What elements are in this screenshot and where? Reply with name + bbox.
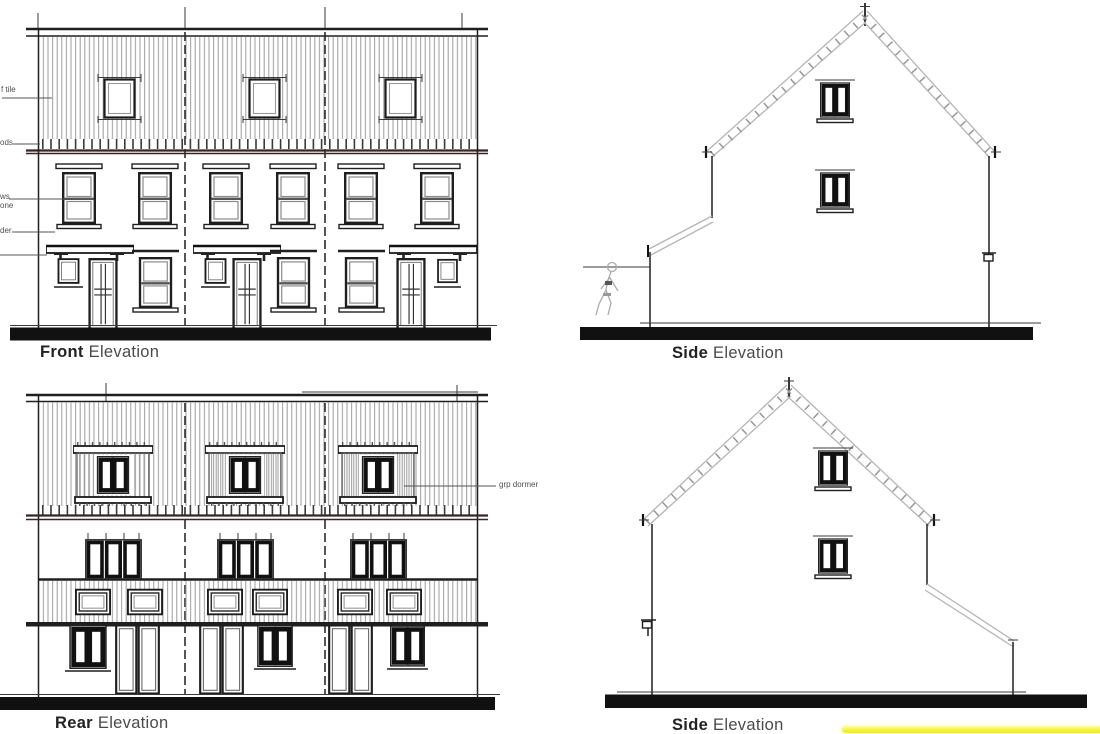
ground-floor-window [132, 251, 179, 312]
side-elevation-top-drawing [580, 3, 1041, 340]
band-window [128, 590, 162, 615]
rear-elevation-label: RearElevation [55, 714, 168, 733]
dormer-window [205, 444, 285, 505]
label-rest: Elevation [713, 716, 784, 734]
label-bold: Side [672, 716, 708, 734]
band-window [338, 590, 372, 615]
dormer-window [338, 444, 418, 505]
first-floor-window [56, 164, 102, 229]
attic-window [98, 74, 141, 123]
rainwater-hopper [641, 620, 656, 636]
band-window [76, 590, 110, 615]
annotation-stone: one [0, 202, 13, 210]
side-elevation-bottom-drawing [605, 377, 1087, 708]
annotation-grp-dormer: grp dormer [499, 481, 538, 489]
attic-window [243, 74, 286, 123]
first-floor-window [132, 164, 178, 229]
triple-window [351, 533, 406, 579]
patio-door [200, 625, 220, 693]
first-floor-window [203, 164, 249, 229]
band-window [387, 590, 421, 615]
highlight-marker [842, 726, 1100, 733]
attic-window [379, 74, 422, 123]
first-floor-window [414, 164, 460, 229]
front-door [90, 259, 117, 329]
label-bold: Side [672, 344, 708, 362]
band-window [253, 590, 287, 615]
triple-window [86, 533, 141, 579]
annotation-boards: ods [0, 139, 13, 147]
rear-ground-window [387, 626, 428, 669]
patio-door [352, 625, 372, 693]
first-floor-window [338, 164, 384, 229]
ground-small-window [201, 259, 230, 287]
label-rest: Elevation [713, 344, 784, 362]
gable-window [815, 80, 855, 123]
elevations-svg [0, 0, 1100, 734]
patio-door [223, 625, 243, 693]
side-window [815, 170, 855, 213]
annotation-roof-tile: f tile [1, 86, 16, 94]
rear-ground-line [0, 697, 495, 710]
annotation-render: der [0, 227, 12, 235]
front-door [398, 259, 425, 329]
side-bottom-ground-line [605, 695, 1087, 709]
rear-elevation-drawing [0, 383, 500, 710]
dormer-window [73, 444, 153, 505]
rainwater-hopper [982, 253, 996, 261]
drawing-sheet: FrontElevation SideElevation RearElevati… [0, 0, 1100, 734]
patio-door [116, 625, 136, 693]
person-figure [596, 263, 618, 316]
label-rest: Elevation [89, 343, 160, 361]
ground-small-window [434, 260, 461, 287]
front-elevation-drawing [10, 7, 497, 341]
label-rest: Elevation [98, 714, 169, 732]
ground-small-window [54, 259, 83, 287]
side-elevation-top-label: SideElevation [672, 344, 784, 363]
gable-window [813, 448, 853, 491]
triple-window [218, 533, 273, 579]
ground-floor-window [338, 251, 385, 312]
front-ground-line [10, 328, 491, 341]
patio-door [139, 625, 159, 693]
first-floor-window [270, 164, 316, 229]
side-top-ground-line [580, 327, 1033, 340]
front-elevation-label: FrontElevation [40, 343, 159, 362]
side-window [813, 536, 853, 579]
band-window [208, 590, 242, 615]
front-door [234, 259, 261, 329]
rear-ground-window [65, 626, 111, 671]
ground-floor-window [270, 251, 317, 312]
label-bold: Rear [55, 714, 93, 732]
side-elevation-bottom-label: SideElevation [672, 716, 784, 734]
rear-ground-window [254, 626, 296, 669]
label-bold: Front [40, 343, 84, 361]
patio-door [329, 625, 349, 693]
